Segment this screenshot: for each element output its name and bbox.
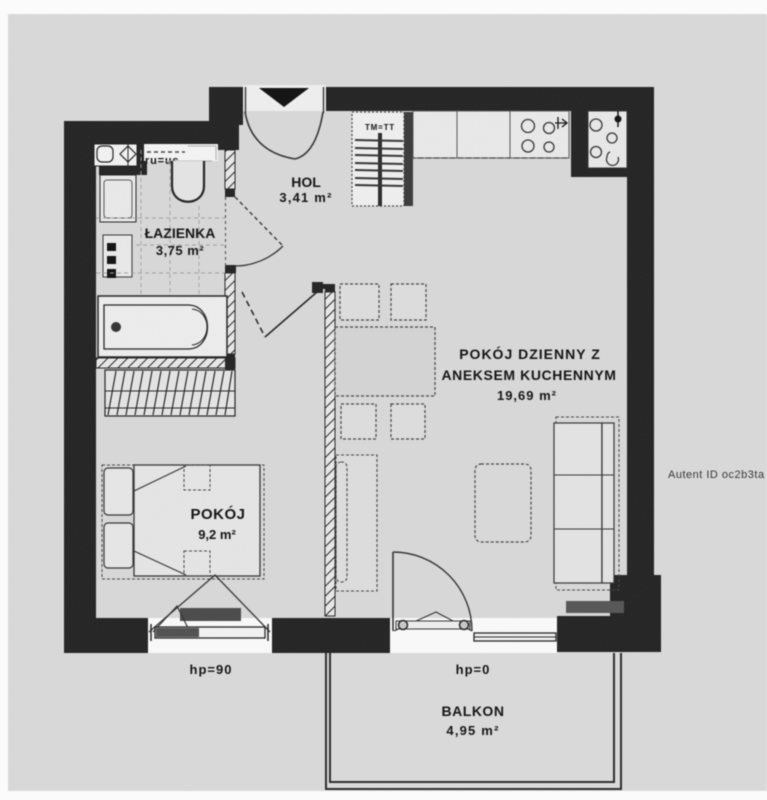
svg-text:POKÓJ DZIENNY Z: POKÓJ DZIENNY Z <box>459 345 601 362</box>
svg-text:hp=90: hp=90 <box>190 662 233 677</box>
svg-text:TM=TT: TM=TT <box>365 123 395 132</box>
svg-text:9,2 m²: 9,2 m² <box>198 527 236 542</box>
svg-text:HOL: HOL <box>291 174 321 190</box>
svg-text:3,75 m²: 3,75 m² <box>156 243 204 258</box>
svg-text:ANEKSEM KUCHENNYM: ANEKSEM KUCHENNYM <box>441 367 616 383</box>
svg-text:Autent ID oc2b3ta: Autent ID oc2b3ta <box>668 469 765 481</box>
svg-text:POKÓJ: POKÓJ <box>190 505 245 523</box>
svg-text:BALKON: BALKON <box>442 703 505 719</box>
svg-text:3,41 m²: 3,41 m² <box>279 190 332 205</box>
svg-text:19,69 m²: 19,69 m² <box>497 388 557 403</box>
svg-text:hp=0: hp=0 <box>456 662 491 677</box>
svg-text:4,95 m²: 4,95 m² <box>446 723 499 738</box>
svg-text:ŁAZIENKA: ŁAZIENKA <box>145 225 216 241</box>
